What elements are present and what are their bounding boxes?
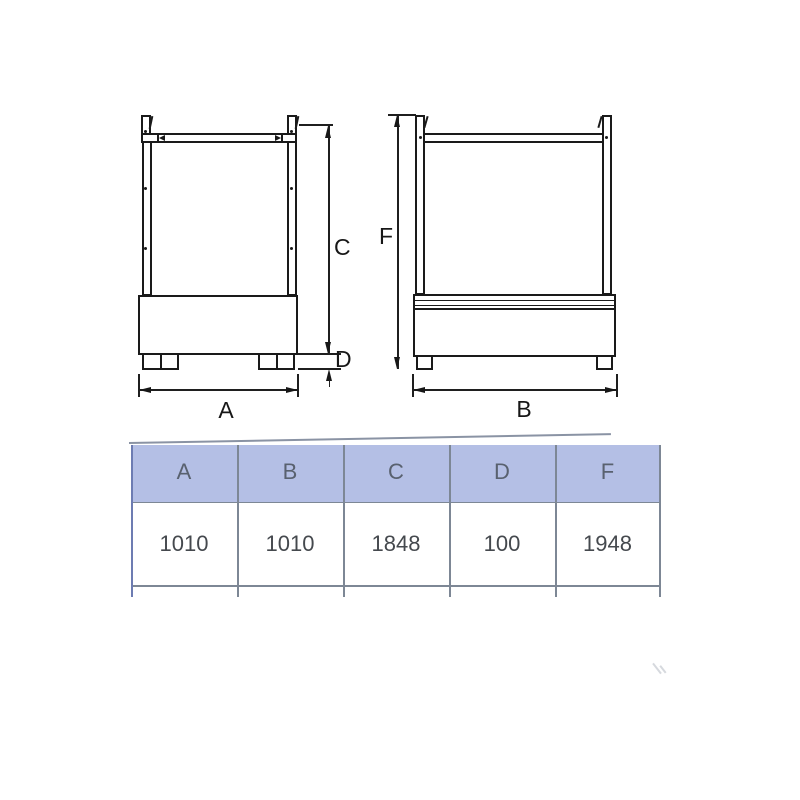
table-bottom-line bbox=[131, 585, 661, 587]
table-header-cell: C bbox=[343, 459, 449, 485]
table-value-cell: 1848 bbox=[343, 531, 449, 557]
table-header-cell: F bbox=[555, 459, 660, 485]
table-value-cell: 1948 bbox=[555, 531, 660, 557]
spec-table: A B C D F 1010 1010 1848 100 1948 bbox=[0, 0, 800, 800]
table-header-cell: B bbox=[237, 459, 343, 485]
table-header-cell: A bbox=[131, 459, 237, 485]
table-top-rule bbox=[129, 433, 611, 444]
table-value-cell: 1010 bbox=[131, 531, 237, 557]
table-header-bottom-line bbox=[131, 502, 661, 504]
table-value-cell: 100 bbox=[449, 531, 555, 557]
table-value-cell: 1010 bbox=[237, 531, 343, 557]
product-dimension-diagram: C D A F bbox=[0, 0, 800, 800]
table-header-cell: D bbox=[449, 459, 555, 485]
